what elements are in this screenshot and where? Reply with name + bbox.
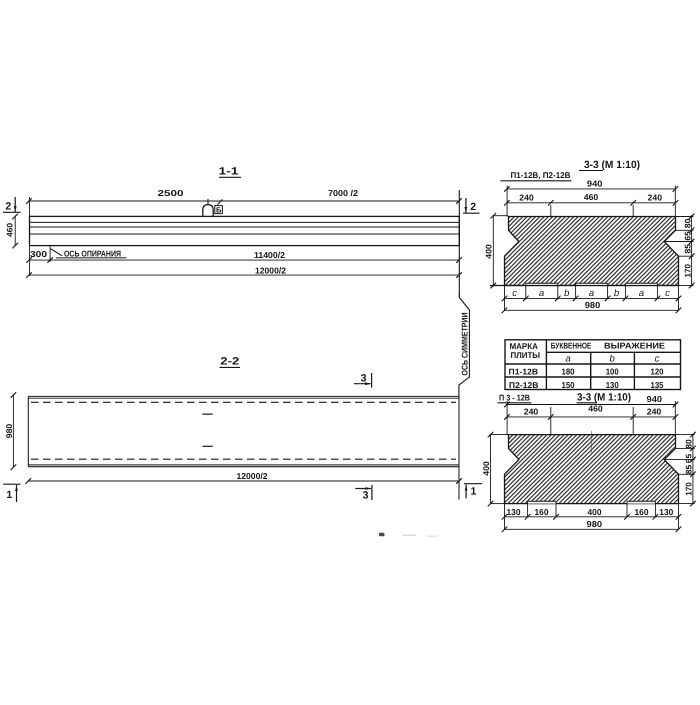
svg-text:3: 3 xyxy=(363,490,369,502)
svg-text:65: 65 xyxy=(682,231,692,241)
svg-text:12000/2: 12000/2 xyxy=(237,471,268,481)
svg-text:7000 /2: 7000 /2 xyxy=(328,188,358,198)
svg-text:240: 240 xyxy=(524,406,539,416)
svg-text:a: a xyxy=(539,288,544,299)
svg-text:940: 940 xyxy=(647,394,663,404)
svg-text:b: b xyxy=(614,288,619,299)
svg-text:БУКВЕННОЕ: БУКВЕННОЕ xyxy=(551,340,592,350)
svg-text:130: 130 xyxy=(659,507,673,517)
svg-text:2500: 2500 xyxy=(158,188,184,198)
svg-text:170: 170 xyxy=(684,482,694,496)
svg-text:980: 980 xyxy=(4,423,14,438)
svg-text:940: 940 xyxy=(587,178,603,188)
svg-text:80: 80 xyxy=(684,439,694,449)
svg-text:300: 300 xyxy=(30,249,47,259)
svg-text:400: 400 xyxy=(483,244,493,259)
svg-text:240: 240 xyxy=(519,192,534,202)
svg-text:460: 460 xyxy=(4,223,14,237)
svg-text:П2-12В: П2-12В xyxy=(509,380,539,390)
svg-text:ВЫРАЖЕНИЕ: ВЫРАЖЕНИЕ xyxy=(604,340,665,350)
svg-text:85: 85 xyxy=(684,464,694,474)
svg-text:460: 460 xyxy=(584,192,599,202)
svg-text:3-3 (М 1:10): 3-3 (М 1:10) xyxy=(577,391,631,403)
svg-text:100: 100 xyxy=(606,367,619,377)
svg-text:11400/2: 11400/2 xyxy=(254,250,285,260)
svg-text:1-1: 1-1 xyxy=(219,166,239,178)
svg-text:b: b xyxy=(564,288,569,299)
svg-text:3-3 (М 1:10): 3-3 (М 1:10) xyxy=(584,159,640,171)
svg-text:170: 170 xyxy=(682,264,692,278)
svg-text:c: c xyxy=(512,288,517,299)
svg-text:ОСЬ ОПИРАНИЯ: ОСЬ ОПИРАНИЯ xyxy=(64,248,121,258)
svg-text:b: b xyxy=(610,354,615,365)
svg-text:180: 180 xyxy=(562,367,575,377)
svg-text:c: c xyxy=(665,288,670,299)
svg-text:120: 120 xyxy=(651,367,664,377)
svg-text:135: 135 xyxy=(651,380,664,390)
svg-text:130: 130 xyxy=(507,507,521,517)
svg-text:a: a xyxy=(566,354,571,365)
svg-text:460: 460 xyxy=(588,404,603,414)
svg-text:400: 400 xyxy=(481,461,491,476)
svg-text:85: 85 xyxy=(682,244,692,254)
svg-text:2: 2 xyxy=(470,201,476,213)
svg-text:1: 1 xyxy=(6,489,12,501)
svg-text:П1-12В: П1-12В xyxy=(509,367,539,377)
svg-text:65: 65 xyxy=(684,453,694,463)
svg-text:2-2: 2-2 xyxy=(220,355,239,367)
svg-text:П1-12В, П2-12В: П1-12В, П2-12В xyxy=(511,170,571,180)
svg-text:c: c xyxy=(655,354,660,365)
svg-text:ОСЬ СИММЕТРИИ: ОСЬ СИММЕТРИИ xyxy=(459,313,469,376)
svg-text:400: 400 xyxy=(588,507,602,517)
svg-text:980: 980 xyxy=(587,519,603,529)
svg-text:160: 160 xyxy=(635,507,649,517)
svg-text:a: a xyxy=(589,288,594,299)
svg-text:12000/2: 12000/2 xyxy=(255,265,286,275)
svg-text:80: 80 xyxy=(682,218,692,228)
svg-text:1: 1 xyxy=(470,486,476,498)
svg-text:980: 980 xyxy=(585,300,601,310)
svg-text:ПЛИТЫ: ПЛИТЫ xyxy=(511,350,541,360)
svg-text:130: 130 xyxy=(606,380,619,390)
svg-text:160: 160 xyxy=(535,507,549,517)
svg-text:240: 240 xyxy=(647,406,662,416)
svg-text:150: 150 xyxy=(562,380,575,390)
svg-text:240: 240 xyxy=(648,192,663,202)
svg-text:Б: Б xyxy=(216,206,222,215)
svg-text:2: 2 xyxy=(5,201,11,213)
svg-text:П 3 - 12В: П 3 - 12В xyxy=(499,393,530,403)
svg-text:a: a xyxy=(639,288,644,299)
